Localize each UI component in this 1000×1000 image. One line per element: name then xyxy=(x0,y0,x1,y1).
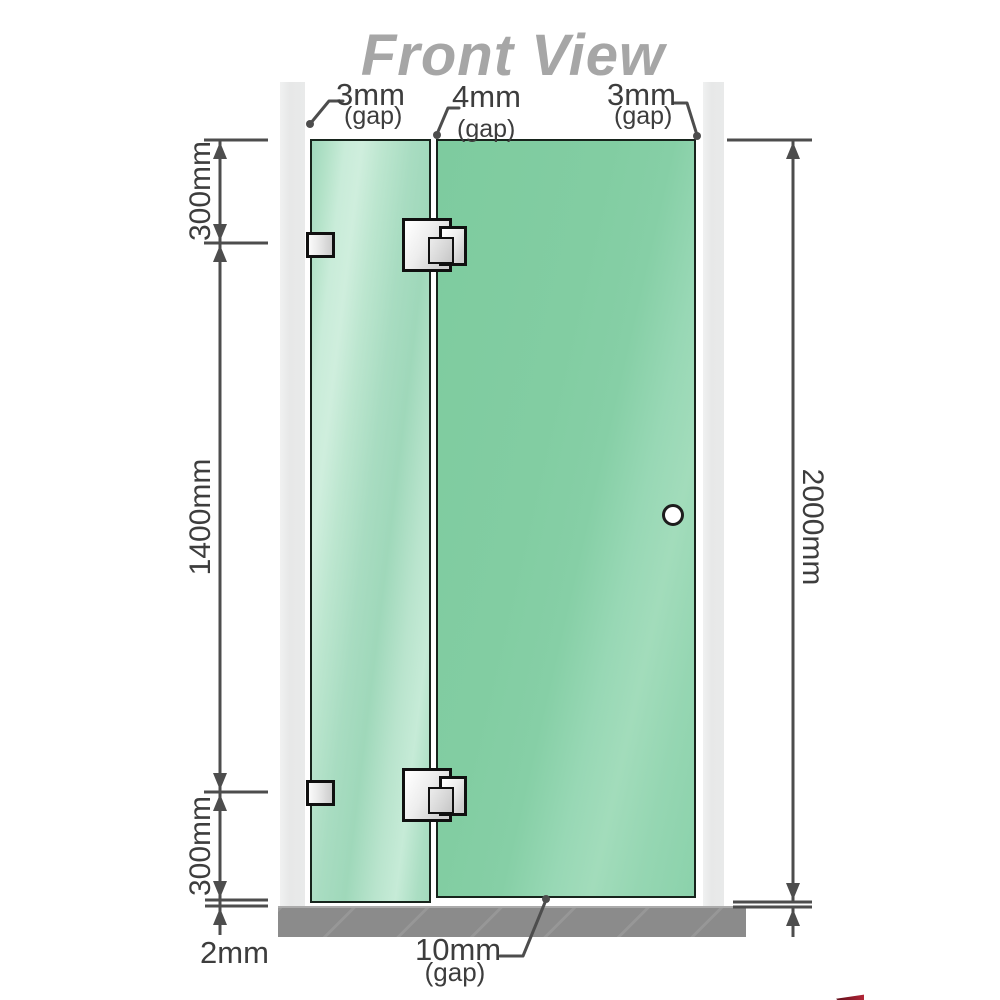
gap-unit-top-left: (gap) xyxy=(344,104,402,129)
height-label-top: 300mm xyxy=(186,141,216,241)
height-label-middle: 1400mm xyxy=(186,459,216,576)
floor-clearance-label: 2mm xyxy=(200,937,269,968)
front-view-diagram: Front View xyxy=(0,0,1000,1000)
gap-unit-top-right: (gap) xyxy=(614,104,672,129)
leader-dots xyxy=(306,120,701,903)
dimension-lines xyxy=(0,0,1000,1000)
gap-unit-top-mid: (gap) xyxy=(457,117,515,142)
leader-lines xyxy=(310,101,697,956)
height-label-bottom: 300mm xyxy=(186,796,216,896)
gap-label-top-mid: 4mm xyxy=(452,81,521,112)
bottom-gap-unit: (gap) xyxy=(413,959,497,985)
total-height-label: 2000mm xyxy=(797,469,827,586)
